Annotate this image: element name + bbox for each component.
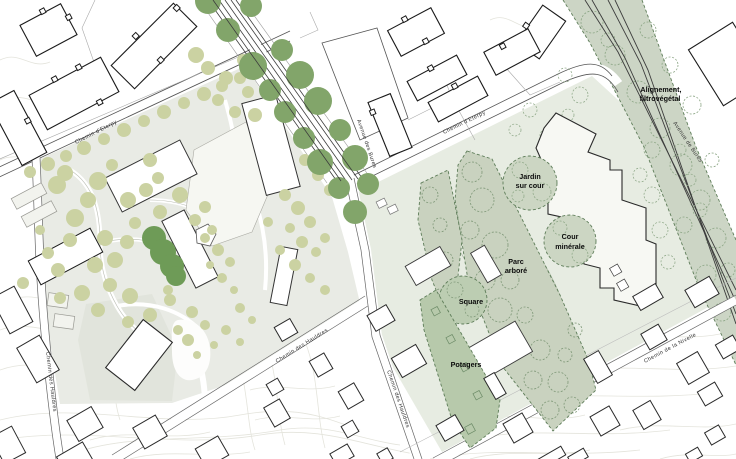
svg-text:Jardin: Jardin [519,172,541,181]
svg-text:Cour: Cour [562,232,579,241]
svg-text:Parc: Parc [508,257,524,266]
svg-text:sur cour: sur cour [516,181,545,190]
svg-text:Alignement,: Alignement, [640,85,681,94]
svg-text:Square: Square [459,297,483,306]
svg-text:minérale: minérale [555,242,585,251]
svg-text:filtrovégétal: filtrovégétal [640,94,681,103]
svg-text:Potagers: Potagers [451,360,482,369]
svg-text:arboré: arboré [505,266,527,275]
